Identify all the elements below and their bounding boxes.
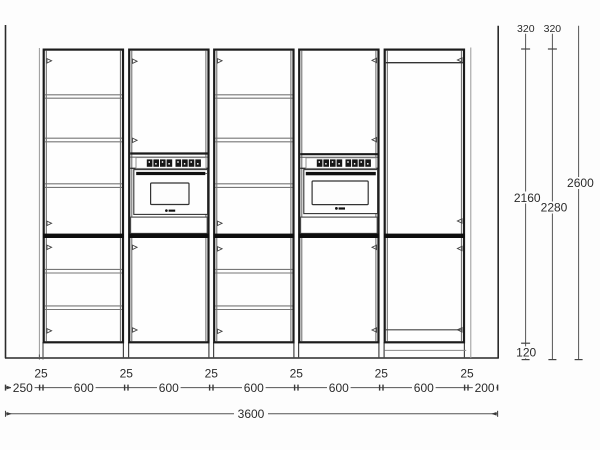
svg-text:600: 600: [414, 381, 434, 395]
svg-text:3600: 3600: [238, 407, 265, 421]
svg-text:600: 600: [329, 381, 349, 395]
svg-text:600: 600: [74, 381, 94, 395]
svg-text:250: 250: [13, 381, 33, 395]
svg-text:25: 25: [375, 367, 389, 381]
svg-text:320: 320: [544, 23, 562, 35]
svg-text:200: 200: [475, 381, 495, 395]
svg-text:25: 25: [290, 367, 304, 381]
svg-text:320: 320: [517, 23, 535, 35]
svg-text:2160: 2160: [514, 191, 541, 205]
svg-text:25: 25: [205, 367, 219, 381]
svg-text:25: 25: [34, 367, 48, 381]
svg-text:25: 25: [120, 367, 134, 381]
svg-text:25: 25: [460, 367, 474, 381]
svg-text:120: 120: [516, 346, 536, 360]
svg-text:2600: 2600: [567, 176, 594, 190]
svg-text:2280: 2280: [541, 200, 568, 214]
svg-text:600: 600: [159, 381, 179, 395]
svg-text:600: 600: [244, 381, 264, 395]
